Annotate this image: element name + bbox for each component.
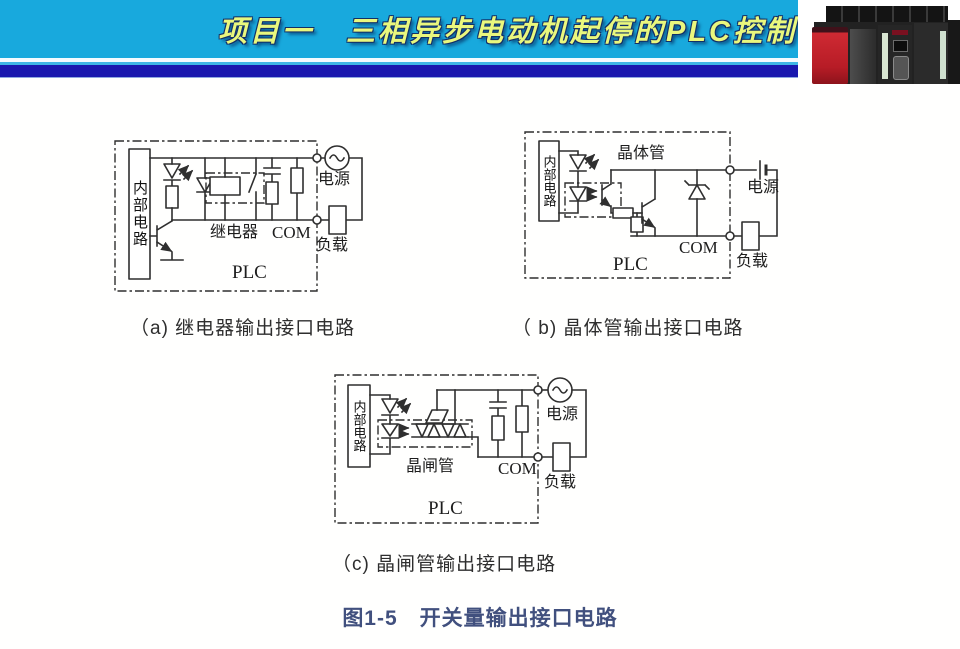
output-terminal: [726, 166, 734, 174]
internal-circuit-label: 内部电路: [539, 141, 559, 221]
plc-label: PLC: [232, 262, 267, 284]
plc-photo-label-strip: [882, 33, 888, 79]
plc-photo-module: [948, 20, 960, 84]
power-label: 电源: [546, 406, 578, 424]
relay-contact-symbol: [249, 158, 256, 220]
output-terminal: [313, 154, 321, 162]
plc-label: PLC: [613, 254, 648, 276]
com-terminal: [313, 216, 321, 224]
load-symbol: [553, 443, 570, 471]
plc-photo-module: [850, 29, 876, 84]
transistor-label: 晶体管: [617, 145, 665, 163]
triac-symbol: [412, 424, 468, 437]
plc-photo-dsub-connector: [893, 56, 909, 80]
thyristor-circuit-schematic: [328, 366, 638, 551]
thyristor-label: 晶闸管: [406, 458, 454, 476]
com-terminal: [726, 232, 734, 240]
output-terminal: [534, 386, 542, 394]
transistor-symbol: [642, 170, 655, 236]
load-symbol: [329, 206, 346, 234]
figure-caption: 图1-5 开关量输出接口电路: [0, 602, 960, 632]
circuit-c-thyristor-output: 内部电路 晶闸管 COM PLC 电源 负载: [328, 366, 638, 551]
caption-circuit-a: （a) 继电器输出接口电路: [130, 313, 355, 340]
load-label: 负载: [544, 474, 576, 492]
load-label: 负载: [316, 237, 348, 255]
slide: 项目一 三相异步电动机起停的PLC控制: [0, 0, 960, 649]
internal-circuit-label: 内部电路: [129, 149, 150, 279]
plc-photo-led-block: [892, 30, 908, 35]
com-label: COM: [498, 459, 537, 479]
plc-photo-ethernet-port: [893, 40, 908, 52]
resistor-branch: [291, 158, 303, 220]
resistor-branch: [516, 390, 528, 457]
power-label: 电源: [318, 171, 350, 189]
relay-label: 继电器: [210, 224, 258, 242]
optocoupler-symbol: [559, 170, 621, 217]
trigger-symbol: [426, 390, 448, 423]
load-symbol: [742, 222, 759, 250]
plc-photo-power-module: [812, 27, 848, 84]
com-label: COM: [679, 238, 718, 258]
plc-photo-label-strip: [940, 31, 946, 79]
power-source-symbol: [325, 146, 349, 170]
capacitor-resistor-branch: [490, 390, 506, 457]
load-label: 负载: [736, 253, 768, 271]
relay-circuit-schematic: [100, 128, 440, 313]
com-label: COM: [272, 223, 311, 243]
transistor-symbol: [150, 221, 183, 260]
circuit-b-transistor-output: 内部电路 晶体管 COM PLC 电源 负载: [505, 123, 815, 298]
plc-label: PLC: [428, 498, 463, 520]
caption-circuit-b: （ b) 晶体管输出接口电路: [512, 313, 743, 340]
power-label: 电源: [747, 179, 779, 197]
capacitor-resistor-branch: [264, 158, 280, 220]
caption-circuit-c: （c) 晶闸管输出接口电路: [332, 549, 556, 576]
battery-symbol: [734, 161, 766, 179]
led-symbol: [164, 158, 192, 186]
zener-diode-symbol: [685, 170, 709, 236]
led-symbol: [559, 151, 598, 187]
power-source-symbol: [542, 378, 572, 402]
plc-hardware-photo: [798, 0, 960, 90]
resistor-symbol: [166, 186, 178, 220]
internal-circuit-label: 内部电路: [348, 385, 370, 467]
circuit-a-relay-output: 内部电路 继电器 COM PLC 电源 负载: [100, 128, 440, 313]
